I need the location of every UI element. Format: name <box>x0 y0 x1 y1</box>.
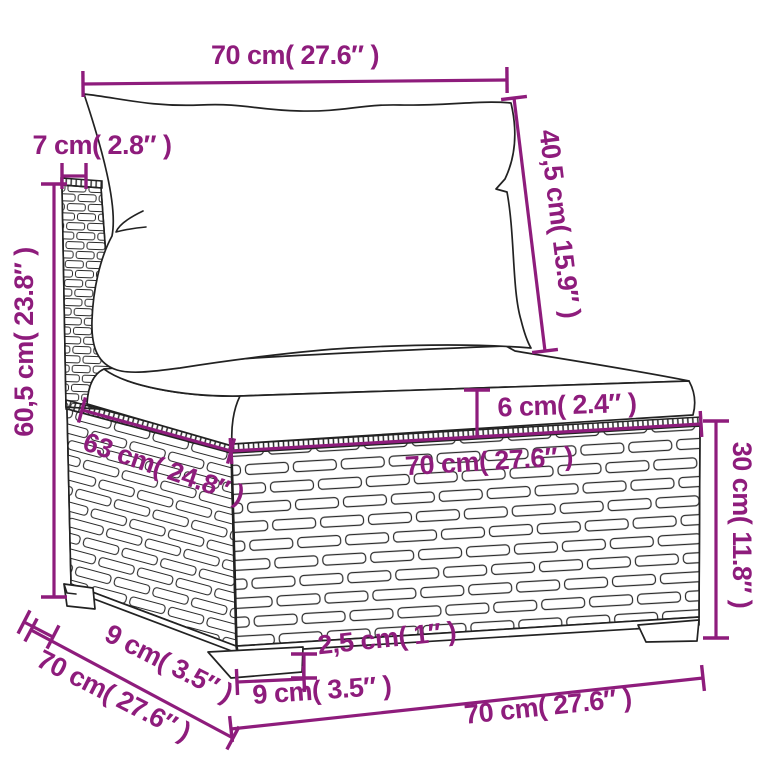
dimension-label-back-cushion-height: 40,5 cm( 15.9″ ) <box>533 128 586 320</box>
dimension-tick <box>236 669 237 695</box>
dimension-back-width: 70 cm( 27.6″ ) <box>83 40 507 97</box>
foot-back-left <box>64 584 95 609</box>
dimension-tick <box>532 349 558 352</box>
dimension-label-foot-width: 9 cm( 3.5″ ) <box>251 670 392 710</box>
dimension-back-height: 60,5 cm( 23.8″ ) <box>9 184 67 597</box>
dimension-line <box>83 80 507 84</box>
dimension-label-base-height: 30 cm( 11.8″ ) <box>727 442 757 609</box>
dimension-tick <box>501 96 527 99</box>
dimension-tick <box>700 411 701 437</box>
dimension-label-base-width: 70 cm( 27.6″ ) <box>463 682 633 729</box>
dimension-tick <box>230 438 231 464</box>
dimension-label-post-top-depth: 7 cm( 2.8″ ) <box>33 130 172 160</box>
dimension-tick <box>18 610 30 633</box>
dimension-label-back-height: 60,5 cm( 23.8″ ) <box>9 247 39 437</box>
dimension-base-height: 30 cm( 11.8″ ) <box>703 421 757 638</box>
dimension-label-seat-cushion-thickness: 6 cm( 2.4″ ) <box>497 388 637 423</box>
sofa-sketch <box>61 94 701 678</box>
furniture-dimension-diagram: 70 cm( 27.6″ )7 cm( 2.8″ )40,5 cm( 15.9″… <box>0 0 767 767</box>
dimension-label-back-width: 70 cm( 27.6″ ) <box>211 40 379 70</box>
dimension-tick <box>702 665 705 691</box>
